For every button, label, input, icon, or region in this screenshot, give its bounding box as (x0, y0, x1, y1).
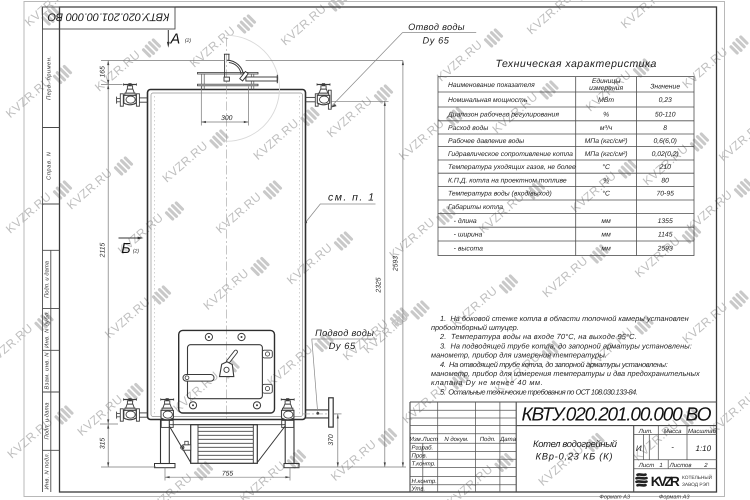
svg-text:2115: 2115 (99, 242, 106, 258)
svg-text:см. п. 1: см. п. 1 (328, 192, 375, 204)
svg-text:Котел водогрейный: Котел водогрейный (533, 438, 618, 449)
svg-text:клапана Dу не менее 40 мм.: клапана Dу не менее 40 мм. (431, 378, 543, 387)
svg-text:1355: 1355 (658, 218, 673, 225)
svg-text:Инв. N дубл.: Инв. N дубл. (44, 311, 51, 348)
svg-text:0,6(6,0): 0,6(6,0) (653, 138, 676, 145)
svg-text:Справ. N: Справ. N (46, 151, 53, 180)
svg-text:- высота: - высота (448, 246, 483, 253)
svg-text:Инв. N подл.: Инв. N подл. (44, 453, 51, 490)
svg-text:KVZR: KVZR (651, 474, 680, 489)
svg-text:МПа (кгс/см²): МПа (кгс/см²) (585, 138, 628, 145)
svg-text:%: % (603, 111, 609, 118)
svg-text:Техническая характеристика: Техническая характеристика (496, 58, 658, 70)
svg-text:Расход воды: Расход воды (448, 125, 488, 132)
svg-text:А: А (169, 32, 180, 48)
svg-text:Подп.: Подп. (480, 436, 496, 443)
svg-text:Масса: Масса (664, 428, 682, 435)
svg-text:Подвод воды: Подвод воды (315, 328, 374, 338)
svg-text:165: 165 (99, 66, 106, 78)
svg-text:Номинальная мощность: Номинальная мощность (448, 97, 528, 104)
svg-text:755: 755 (222, 470, 234, 477)
svg-text:Изм.Лист: Изм.Лист (410, 436, 438, 443)
svg-text:Габариты котла: Габариты котла (448, 204, 503, 211)
svg-text:манометр, прибор для измерения: манометр, прибор для измерения температу… (431, 351, 607, 360)
svg-text:Подп. и дата: Подп. и дата (44, 402, 51, 440)
svg-text:1145: 1145 (658, 232, 673, 239)
svg-text:МВт: МВт (598, 97, 614, 104)
svg-text:Масштаб: Масштаб (688, 428, 717, 435)
svg-text:мм: мм (601, 218, 611, 225)
svg-text:ЗАВОД РЭП: ЗАВОД РЭП (682, 482, 710, 488)
svg-text:0,23: 0,23 (659, 97, 672, 104)
svg-text:- ширина: - ширина (448, 232, 483, 239)
svg-text:КОТЕЛЬНЫЙ: КОТЕЛЬНЫЙ (682, 474, 713, 481)
svg-text:Лит.: Лит. (638, 428, 653, 435)
svg-text:Т.контр.: Т.контр. (412, 460, 436, 467)
svg-text:4. На отводящей трубе котла,: 4. На отводящей трубе котла, до запорной… (440, 360, 668, 369)
svg-text:2325: 2325 (375, 277, 382, 293)
svg-text:Формат А3: Формат А3 (659, 494, 690, 500)
svg-text:Значение: Значение (650, 84, 680, 91)
svg-text:2. Температура воды на входе: 2. Температура воды на входе 70°С, на вы… (439, 332, 637, 341)
svg-text:50-110: 50-110 (655, 111, 676, 118)
svg-text:МПа (кгс/см²): МПа (кгс/см²) (585, 151, 628, 158)
svg-text:Dy 65: Dy 65 (422, 36, 449, 46)
svg-text:1:10: 1:10 (696, 444, 712, 453)
svg-text:3. На подводящей трубе котла,: 3. На подводящей трубе котла, до запорно… (440, 341, 692, 350)
svg-text:70-95: 70-95 (657, 191, 675, 198)
svg-text:Разраб.: Разраб. (412, 445, 434, 452)
svg-text:Dy 65: Dy 65 (329, 341, 356, 351)
svg-text:Температура воды (вход/выход): Температура воды (вход/выход) (448, 191, 552, 198)
svg-text:Листов: Листов (669, 462, 692, 469)
svg-text:8: 8 (663, 125, 667, 132)
svg-text:Н.контр.: Н.контр. (412, 478, 437, 485)
svg-text:пробоотборный штуцер.: пробоотборный штуцер. (431, 323, 519, 332)
svg-text:мм: мм (601, 246, 611, 253)
svg-text:1: 1 (659, 462, 662, 469)
svg-text:315: 315 (99, 438, 106, 450)
svg-text:370: 370 (328, 434, 335, 446)
svg-text:КВТУ.020.201.00.000 ВО: КВТУ.020.201.00.000 ВО (47, 11, 169, 23)
svg-text:Формат А3: Формат А3 (599, 494, 630, 500)
svg-text:Отвод воды: Отвод воды (408, 22, 465, 32)
svg-text:м³/ч: м³/ч (600, 125, 613, 132)
svg-text:Единицы: Единицы (592, 78, 620, 85)
svg-text:1. На боковой стенке котла в: 1. На боковой стенке котла в области топ… (440, 314, 689, 323)
svg-text:N докум.: N докум. (444, 436, 468, 443)
svg-text:5. Остальные технические треб: 5. Остальные технические требования по О… (440, 387, 638, 396)
svg-text:Б: Б (121, 241, 130, 257)
svg-text:2593: 2593 (657, 246, 673, 253)
svg-text:-: - (671, 443, 674, 452)
svg-text:- длина: - длина (448, 218, 477, 225)
svg-text:К.П.Д. котла на проектном топл: К.П.Д. котла на проектном топливе (448, 177, 567, 184)
svg-text:Дата: Дата (499, 436, 516, 443)
svg-text:(2): (2) (185, 38, 192, 44)
svg-text:Рабочее давление воды: Рабочее давление воды (448, 138, 524, 145)
svg-text:Лист: Лист (638, 462, 654, 469)
svg-text:измерения: измерения (589, 85, 623, 92)
svg-text:0,02(0,2): 0,02(0,2) (652, 151, 679, 158)
svg-text:2: 2 (703, 462, 708, 469)
svg-text:Гидравлическое сопротивление к: Гидравлическое сопротивление котла (448, 151, 573, 158)
svg-text:Диапазон рабочего регулировани: Диапазон рабочего регулирования (447, 111, 559, 118)
svg-text:Наименование показателя: Наименование показателя (448, 82, 535, 89)
svg-text:манометр, прибор для измерения: манометр, прибор для измерения температу… (431, 369, 700, 378)
svg-text:мм: мм (601, 232, 611, 239)
svg-text:Взам. инв. N: Взам. инв. N (45, 352, 51, 390)
svg-text:Температура уходящих газов, не: Температура уходящих газов, не более (448, 164, 576, 171)
svg-text:И: И (636, 444, 642, 453)
svg-text:Перв. примен.: Перв. примен. (47, 56, 53, 100)
svg-text:(2): (2) (133, 249, 140, 255)
svg-text:Пров.: Пров. (412, 452, 428, 459)
svg-text:КВр-0,23 КБ (К): КВр-0,23 КБ (К) (536, 450, 613, 461)
svg-text:300: 300 (221, 115, 233, 122)
svg-text:КВТУ.020.201.00.000 ВО: КВТУ.020.201.00.000 ВО (522, 405, 712, 426)
svg-text:Подп. и дата: Подп. и дата (44, 260, 51, 298)
svg-text:210: 210 (659, 164, 672, 171)
svg-text:°С: °С (602, 191, 610, 198)
svg-text:°С: °С (602, 164, 610, 171)
svg-text:80: 80 (661, 177, 669, 184)
svg-text:Утв.: Утв. (411, 486, 426, 493)
svg-text:%: % (603, 177, 609, 184)
svg-text:2593: 2593 (392, 256, 399, 272)
